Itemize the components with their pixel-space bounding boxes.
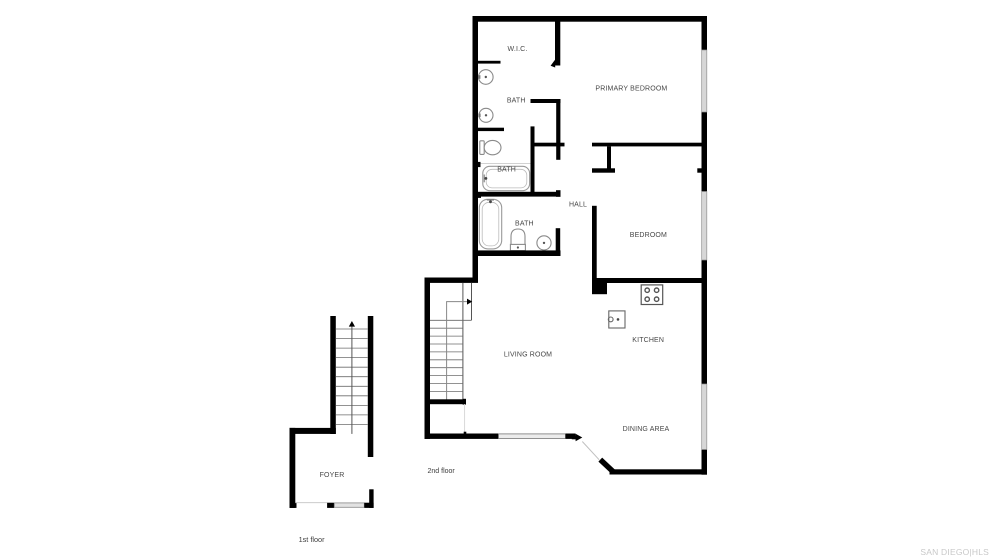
svg-text:KITCHEN: KITCHEN xyxy=(632,337,664,344)
svg-text:DINING AREA: DINING AREA xyxy=(623,426,670,433)
svg-text:1st floor: 1st floor xyxy=(299,535,326,544)
svg-text:BATH: BATH xyxy=(515,221,534,228)
svg-text:2nd floor: 2nd floor xyxy=(428,468,456,475)
svg-text:SAN DIEGO|HLS: SAN DIEGO|HLS xyxy=(920,547,989,557)
svg-text:BATH: BATH xyxy=(497,166,516,173)
svg-text:PRIMARY BEDROOM: PRIMARY BEDROOM xyxy=(595,86,667,93)
svg-text:BEDROOM: BEDROOM xyxy=(630,232,667,239)
svg-text:BATH: BATH xyxy=(507,98,526,105)
svg-text:FOYER: FOYER xyxy=(320,472,345,479)
svg-text:LIVING ROOM: LIVING ROOM xyxy=(504,352,552,359)
svg-text:HALL: HALL xyxy=(569,202,587,209)
svg-text:W.I.C.: W.I.C. xyxy=(508,46,528,53)
